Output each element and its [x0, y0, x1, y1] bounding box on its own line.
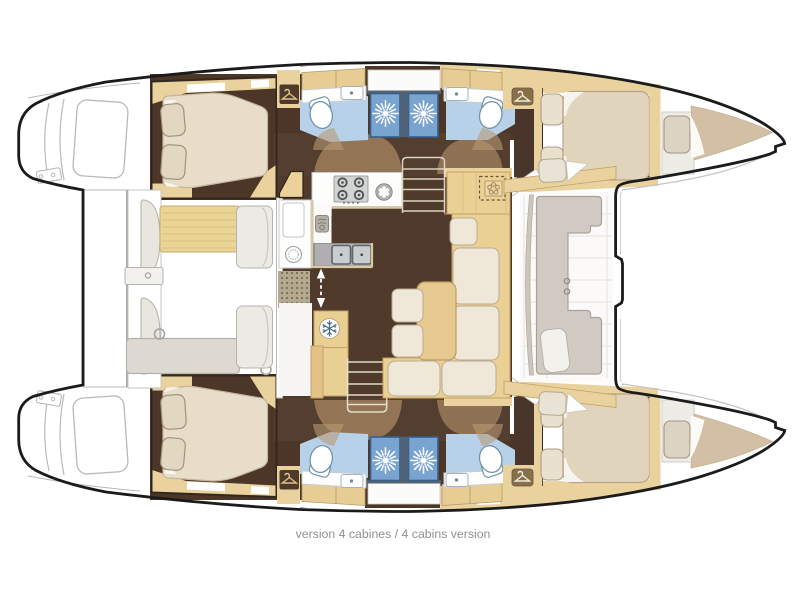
svg-text:version 4 cabines / 4 cabins v: version 4 cabines / 4 cabins version — [296, 527, 491, 541]
